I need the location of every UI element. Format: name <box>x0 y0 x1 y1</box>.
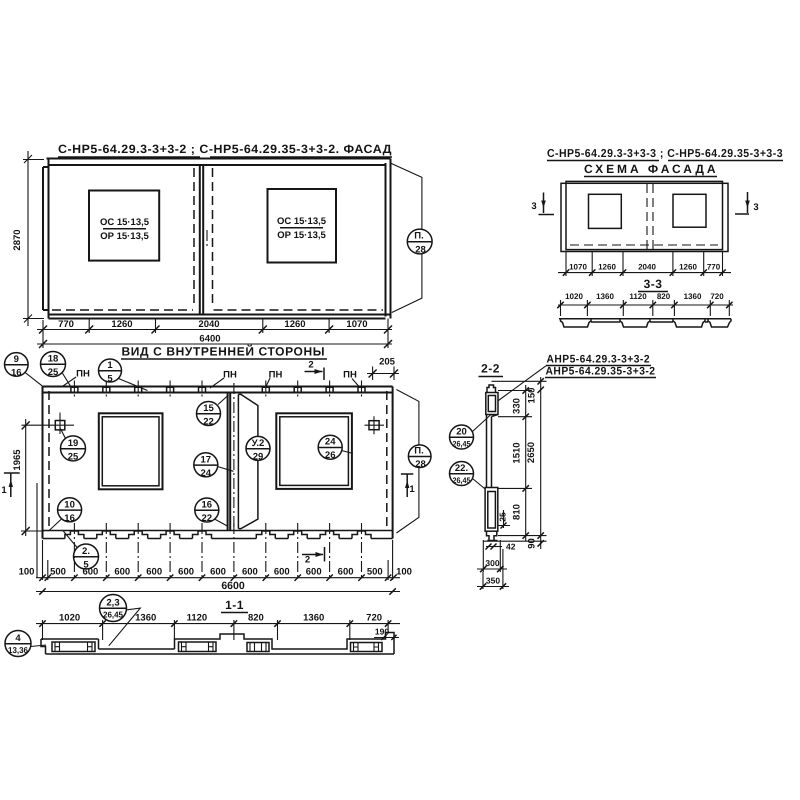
svg-text:25: 25 <box>68 452 79 463</box>
svg-text:3: 3 <box>753 202 758 213</box>
svg-text:16: 16 <box>11 368 22 379</box>
svg-text:ПН: ПН <box>343 370 357 381</box>
svg-text:24: 24 <box>325 437 336 448</box>
svg-text:29: 29 <box>253 452 264 463</box>
svg-text:1020: 1020 <box>565 292 583 301</box>
svg-text:100: 100 <box>19 567 35 578</box>
svg-text:28: 28 <box>415 245 426 256</box>
svg-text:1: 1 <box>1 485 7 496</box>
svg-text:1260: 1260 <box>111 319 132 330</box>
svg-text:1260: 1260 <box>598 263 616 272</box>
svg-text:2040: 2040 <box>198 319 219 330</box>
svg-text:1510: 1510 <box>512 442 523 463</box>
svg-text:ОС 15·13,5: ОС 15·13,5 <box>277 216 327 227</box>
svg-text:1360: 1360 <box>684 292 702 301</box>
svg-text:ОР 15·13,5: ОР 15·13,5 <box>277 230 326 241</box>
svg-text:205: 205 <box>379 357 396 368</box>
svg-text:18: 18 <box>48 354 59 365</box>
svg-text:190: 190 <box>375 627 389 637</box>
svg-text:ОС 15·13,5: ОС 15·13,5 <box>100 217 150 228</box>
svg-text:42: 42 <box>506 542 516 552</box>
svg-text:1020: 1020 <box>59 613 80 624</box>
svg-text:600: 600 <box>114 567 130 578</box>
svg-text:26: 26 <box>325 450 336 461</box>
svg-text:2,3: 2,3 <box>106 598 119 609</box>
svg-text:С-НР5-64.29.3-3+3-2 ; С-НР5-64: С-НР5-64.29.3-3+3-2 ; С-НР5-64.29.35-3+3… <box>58 142 392 156</box>
svg-text:4: 4 <box>15 633 21 644</box>
svg-text:1360: 1360 <box>135 613 156 624</box>
svg-text:28: 28 <box>415 459 426 470</box>
svg-text:25: 25 <box>48 367 59 378</box>
svg-text:2040: 2040 <box>638 263 656 272</box>
svg-text:600: 600 <box>274 567 290 578</box>
svg-text:600: 600 <box>146 567 162 578</box>
svg-text:П.: П. <box>414 446 423 457</box>
svg-text:720: 720 <box>710 292 724 301</box>
svg-text:3: 3 <box>531 201 536 212</box>
svg-text:АНР5-64.29.35-3+3-2: АНР5-64.29.35-3+3-2 <box>546 366 656 378</box>
svg-text:2650: 2650 <box>526 442 537 463</box>
svg-text:600: 600 <box>338 567 354 578</box>
svg-text:26,45: 26,45 <box>453 476 471 485</box>
svg-text:1120: 1120 <box>187 613 208 624</box>
svg-text:810: 810 <box>512 504 523 520</box>
svg-text:22: 22 <box>202 513 213 524</box>
svg-text:330: 330 <box>512 398 523 414</box>
svg-text:1360: 1360 <box>596 292 614 301</box>
svg-text:770: 770 <box>707 263 721 272</box>
svg-text:820: 820 <box>248 613 264 624</box>
svg-text:25: 25 <box>498 512 508 522</box>
svg-text:2.: 2. <box>82 546 90 557</box>
svg-text:1: 1 <box>107 360 113 371</box>
svg-text:600: 600 <box>210 567 226 578</box>
svg-text:5: 5 <box>107 374 113 385</box>
svg-text:2: 2 <box>308 360 313 371</box>
svg-text:1: 1 <box>409 484 415 495</box>
svg-text:19: 19 <box>68 438 79 449</box>
svg-text:26,45: 26,45 <box>453 440 471 449</box>
svg-text:600: 600 <box>178 567 194 578</box>
svg-text:22.: 22. <box>455 463 468 474</box>
svg-text:20: 20 <box>456 427 467 438</box>
svg-text:2: 2 <box>305 555 310 566</box>
svg-text:500: 500 <box>367 567 383 578</box>
svg-text:1965: 1965 <box>12 449 23 471</box>
svg-text:90: 90 <box>527 538 538 549</box>
svg-text:С-НР5-64.29.3-3+3-3 ; С-НР5-64: С-НР5-64.29.3-3+3-3 ; С-НР5-64.29.35-3+3… <box>547 148 783 160</box>
svg-text:500: 500 <box>50 567 66 578</box>
svg-text:1070: 1070 <box>346 319 367 330</box>
svg-text:100: 100 <box>396 567 412 578</box>
svg-text:26,45: 26,45 <box>103 610 123 620</box>
svg-text:1070: 1070 <box>569 263 587 272</box>
svg-text:150: 150 <box>527 388 538 404</box>
svg-text:1120: 1120 <box>629 292 647 301</box>
svg-text:1260: 1260 <box>284 319 305 330</box>
svg-text:ПН: ПН <box>223 370 237 381</box>
svg-text:ВИД С ВНУТРЕННЕЙ СТОРОНЫ: ВИД С ВНУТРЕННЕЙ СТОРОНЫ <box>122 345 326 359</box>
svg-text:22: 22 <box>203 417 214 428</box>
svg-text:13,36: 13,36 <box>8 645 28 655</box>
svg-text:15: 15 <box>203 403 214 414</box>
svg-text:820: 820 <box>657 292 671 301</box>
svg-text:ОР 15·13,5: ОР 15·13,5 <box>100 231 149 242</box>
svg-text:1360: 1360 <box>303 613 324 624</box>
svg-text:600: 600 <box>242 567 258 578</box>
svg-text:ПН: ПН <box>269 370 283 381</box>
svg-text:У.2: У.2 <box>252 438 265 449</box>
svg-text:6400: 6400 <box>199 334 220 345</box>
svg-text:ПН: ПН <box>76 369 90 380</box>
svg-text:350: 350 <box>486 576 500 586</box>
svg-text:600: 600 <box>306 567 322 578</box>
svg-text:10: 10 <box>64 499 75 510</box>
svg-text:24: 24 <box>201 468 212 479</box>
svg-text:АНР5-64.29.3-3+3-2: АНР5-64.29.3-3+3-2 <box>547 354 651 366</box>
svg-text:6600: 6600 <box>221 580 245 592</box>
svg-text:600: 600 <box>82 567 98 578</box>
svg-text:2870: 2870 <box>12 229 23 250</box>
svg-text:720: 720 <box>366 613 382 624</box>
svg-text:16: 16 <box>64 513 75 524</box>
svg-text:3-3: 3-3 <box>644 277 663 291</box>
svg-text:770: 770 <box>58 319 74 330</box>
svg-text:300: 300 <box>485 558 499 568</box>
svg-text:16: 16 <box>202 500 213 511</box>
svg-text:2-2: 2-2 <box>481 362 500 376</box>
svg-text:17: 17 <box>201 454 212 465</box>
svg-text:1260: 1260 <box>679 263 697 272</box>
svg-text:9: 9 <box>14 354 19 365</box>
svg-text:1-1: 1-1 <box>225 598 244 612</box>
svg-text:П.: П. <box>414 231 423 242</box>
